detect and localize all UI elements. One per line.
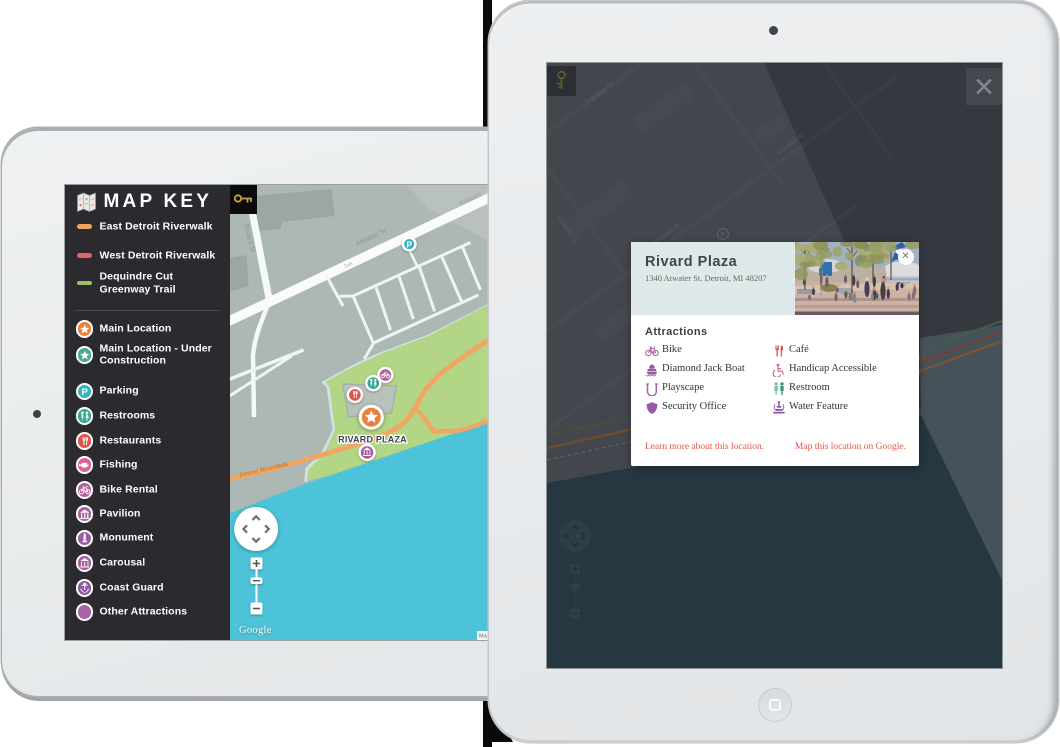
svg-text:P: P (81, 387, 87, 398)
svg-text:Ma: Ma (479, 634, 488, 640)
svg-text:P: P (406, 240, 412, 250)
svg-text:RIVARD PLAZA: RIVARD PLAZA (338, 435, 407, 445)
svg-text:Google: Google (239, 625, 272, 636)
